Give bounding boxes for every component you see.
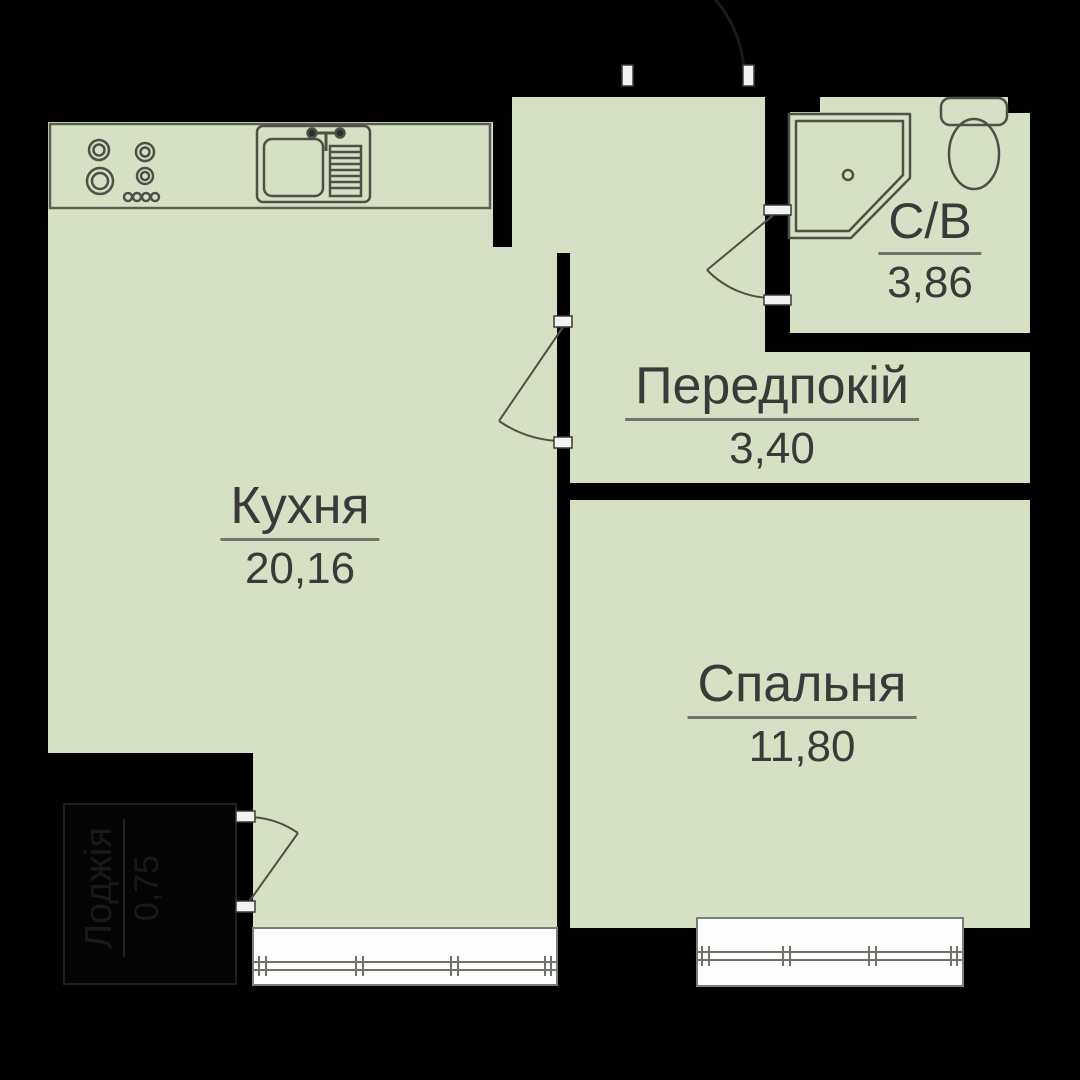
door-jamb [236,811,255,822]
door-jamb [743,65,754,86]
label-bathroom: С/В 3,86 [878,196,981,305]
door-jamb [764,295,791,305]
door-jamb [236,901,255,912]
bathroom-name: С/В [878,196,981,255]
door-jamb [622,65,633,86]
bathroom-area: 3,86 [878,261,981,305]
floor-plan: Кухня 20,16 Передпокій 3,40 Спальня 11,8… [0,0,1080,1080]
hallway-area: 3,40 [625,427,919,471]
loggia-area: 0,75 [130,819,164,957]
label-hallway: Передпокій 3,40 [625,360,919,471]
window-bedroom [697,918,963,986]
bedroom-area: 11,80 [688,725,917,769]
kitchen-area: 20,16 [220,547,379,591]
loggia-name: Лоджія [80,819,125,957]
label-loggia: Лоджія 0,75 [80,819,164,957]
label-kitchen: Кухня 20,16 [220,480,379,591]
bedroom-name: Спальня [688,658,917,719]
door-jamb [764,205,791,215]
door-jamb [554,316,572,327]
label-bedroom: Спальня 11,80 [688,658,917,769]
door-jamb [554,437,572,448]
hallway-name: Передпокій [625,360,919,421]
kitchen-name: Кухня [220,480,379,541]
window-kitchen [253,928,557,985]
